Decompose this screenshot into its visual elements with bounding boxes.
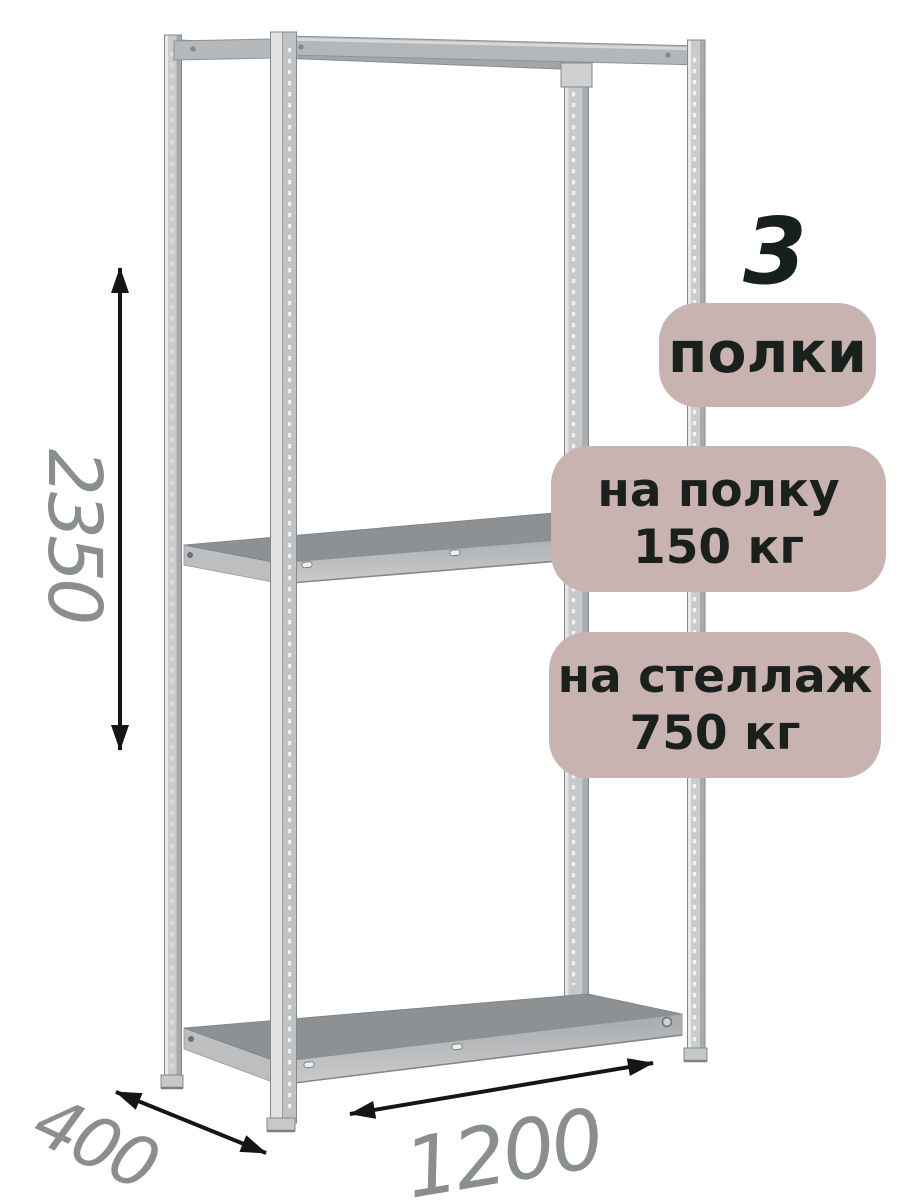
shelf-corner-bolt xyxy=(663,1018,672,1027)
shelf-count-badge: полки xyxy=(659,303,876,407)
rack-post-front-left xyxy=(267,32,297,1131)
per-shelf-load-line1: на полку xyxy=(597,462,839,519)
per-rack-load-line2: 750 кг xyxy=(630,705,801,762)
shelf-count-number: 3 xyxy=(700,206,850,298)
shelf-bolt xyxy=(188,1036,194,1042)
product-image: 3 полки на полку 150 кг на стеллаж 750 к… xyxy=(0,0,900,1200)
height-dimension-label: 2350 xyxy=(29,415,119,655)
shelving-rack-illustration xyxy=(0,0,900,1200)
shelf-count-unit-label: полки xyxy=(668,325,867,382)
rack-post-back-left xyxy=(161,35,183,1088)
per-shelf-load-badge: на полку 150 кг xyxy=(551,446,886,592)
per-shelf-load-line2: 150 кг xyxy=(633,519,804,576)
per-rack-load-line1: на стеллаж xyxy=(558,648,873,705)
shelf-bolt xyxy=(187,552,193,558)
per-rack-load-badge: на стеллаж 750 кг xyxy=(549,632,881,778)
